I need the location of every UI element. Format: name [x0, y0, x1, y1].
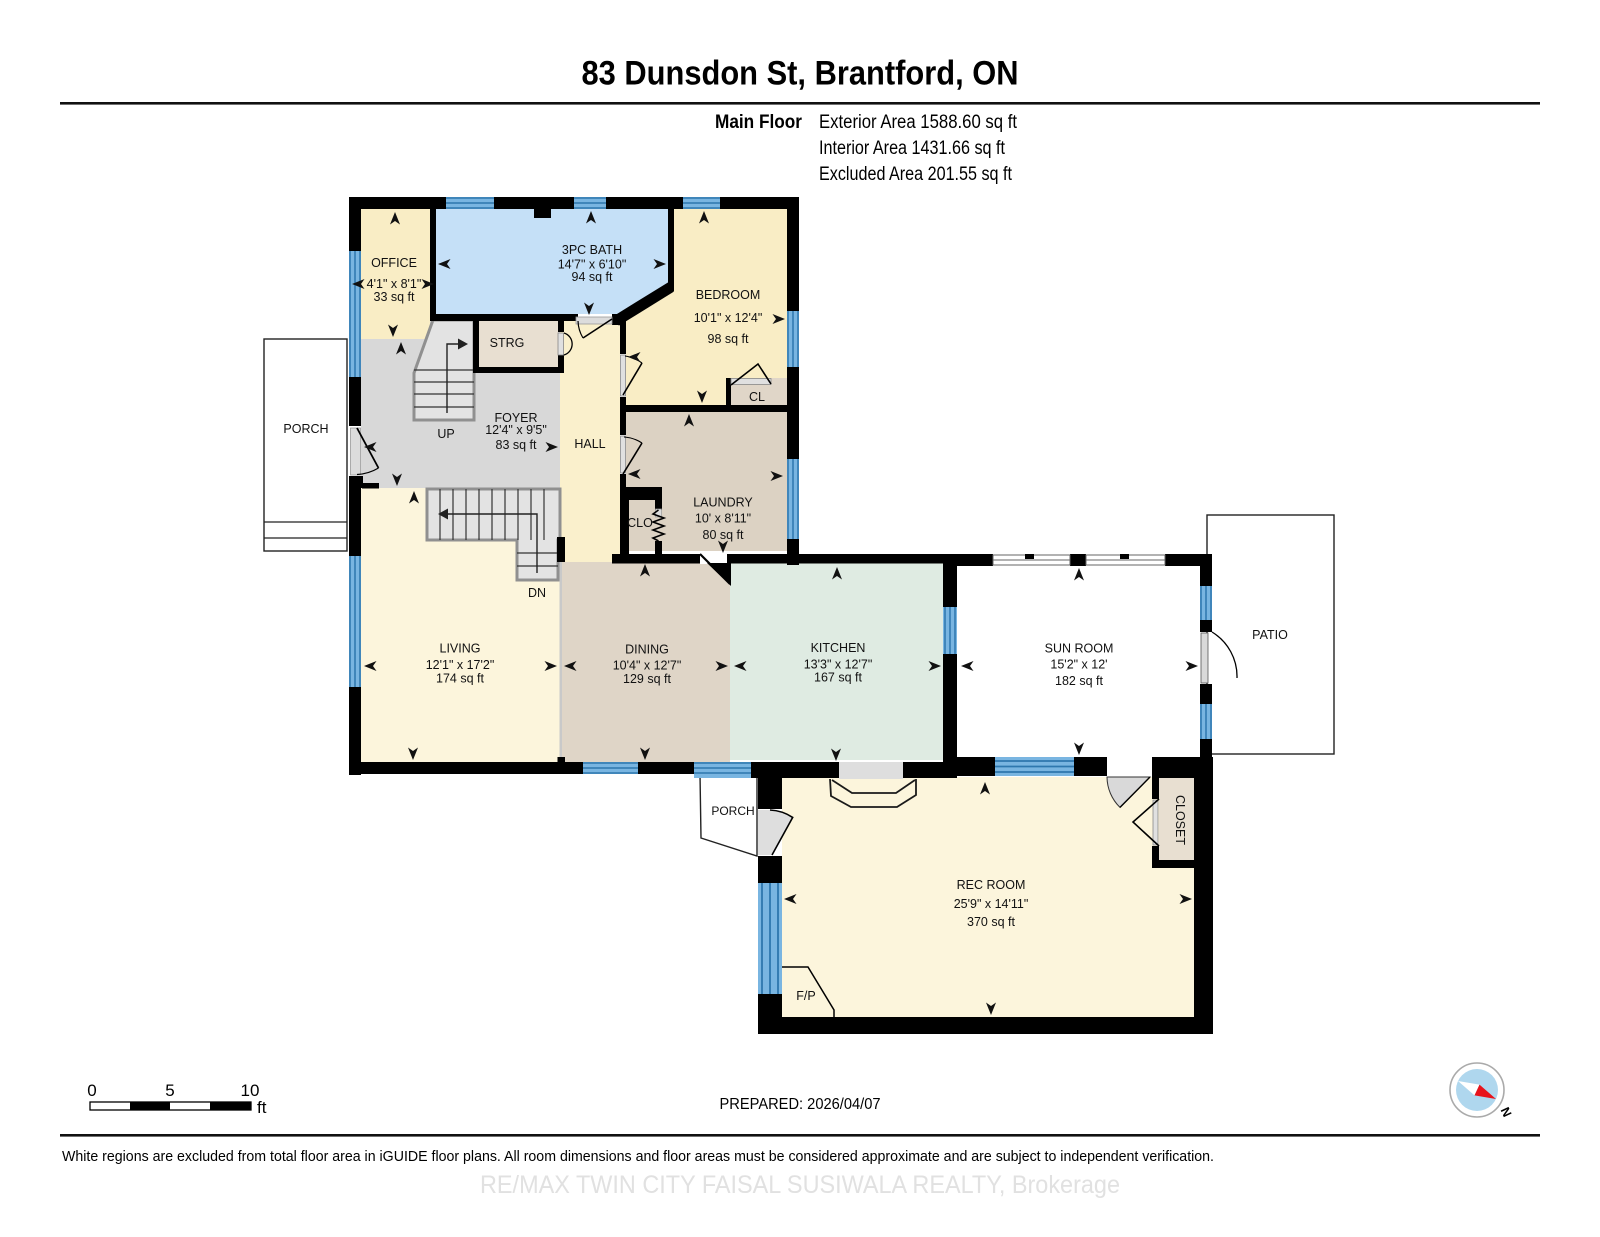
svg-text:CL: CL [749, 390, 765, 404]
svg-text:PREPARED: 2026/04/07: PREPARED: 2026/04/07 [720, 1096, 881, 1113]
svg-text:OFFICE: OFFICE [371, 256, 417, 270]
svg-text:182 sq ft: 182 sq ft [1055, 674, 1103, 688]
svg-text:DN: DN [528, 586, 546, 600]
svg-text:KITCHEN: KITCHEN [811, 641, 866, 655]
svg-text:Exterior Area 1588.60 sq ft: Exterior Area 1588.60 sq ft [819, 112, 1018, 133]
svg-text:RE/MAX TWIN CITY FAISAL SUSIWA: RE/MAX TWIN CITY FAISAL SUSIWALA REALTY,… [480, 1171, 1120, 1199]
svg-text:12'1" x 17'2": 12'1" x 17'2" [426, 658, 495, 672]
svg-text:167 sq ft: 167 sq ft [814, 671, 862, 685]
svg-text:80 sq ft: 80 sq ft [703, 528, 745, 542]
svg-text:CLOSET: CLOSET [1173, 795, 1187, 845]
svg-text:SUN ROOM: SUN ROOM [1045, 642, 1114, 656]
svg-text:94 sq ft: 94 sq ft [572, 270, 614, 284]
svg-text:DINING: DINING [625, 643, 669, 657]
svg-text:PORCH: PORCH [711, 804, 754, 818]
svg-text:370 sq ft: 370 sq ft [967, 915, 1015, 929]
svg-text:10' x 8'11": 10' x 8'11" [695, 512, 751, 526]
svg-text:3PC BATH: 3PC BATH [562, 243, 622, 257]
svg-text:Main Floor: Main Floor [715, 112, 803, 133]
svg-text:0: 0 [87, 1081, 96, 1100]
svg-text:Interior Area 1431.66 sq ft: Interior Area 1431.66 sq ft [819, 138, 1006, 159]
svg-text:CLO: CLO [627, 516, 653, 530]
svg-text:174 sq ft: 174 sq ft [436, 672, 484, 686]
svg-text:LAUNDRY: LAUNDRY [693, 496, 753, 510]
svg-text:PATIO: PATIO [1252, 628, 1288, 642]
svg-text:4'1" x 8'1": 4'1" x 8'1" [367, 277, 422, 291]
svg-text:83 sq ft: 83 sq ft [496, 438, 538, 452]
svg-text:UP: UP [437, 427, 454, 441]
svg-text:F/P: F/P [796, 989, 815, 1003]
svg-text:Excluded Area 201.55 sq ft: Excluded Area 201.55 sq ft [819, 164, 1013, 185]
svg-text:10'1" x 12'4": 10'1" x 12'4" [694, 311, 763, 325]
svg-text:PORCH: PORCH [283, 422, 328, 436]
svg-text:White regions are excluded fro: White regions are excluded from total fl… [62, 1149, 1214, 1165]
svg-text:13'3" x 12'7": 13'3" x 12'7" [804, 658, 873, 672]
svg-text:129 sq ft: 129 sq ft [623, 672, 671, 686]
svg-text:10'4" x 12'7": 10'4" x 12'7" [613, 659, 682, 673]
svg-text:LIVING: LIVING [440, 642, 481, 656]
svg-text:25'9" x 14'11": 25'9" x 14'11" [954, 897, 1029, 911]
svg-text:15'2" x 12': 15'2" x 12' [1050, 658, 1107, 672]
svg-text:N: N [1498, 1105, 1515, 1119]
svg-text:5: 5 [165, 1081, 174, 1100]
svg-text:BEDROOM: BEDROOM [696, 288, 761, 302]
svg-text:33 sq ft: 33 sq ft [374, 290, 416, 304]
svg-text:98 sq ft: 98 sq ft [708, 332, 750, 346]
svg-text:ft: ft [257, 1098, 267, 1117]
svg-text:HALL: HALL [574, 437, 605, 451]
svg-text:REC ROOM: REC ROOM [957, 878, 1026, 892]
svg-text:83 Dunsdon St, Brantford, ON: 83 Dunsdon St, Brantford, ON [582, 55, 1019, 93]
svg-text:12'4" x 9'5": 12'4" x 9'5" [485, 423, 547, 437]
svg-text:STRG: STRG [490, 336, 525, 350]
